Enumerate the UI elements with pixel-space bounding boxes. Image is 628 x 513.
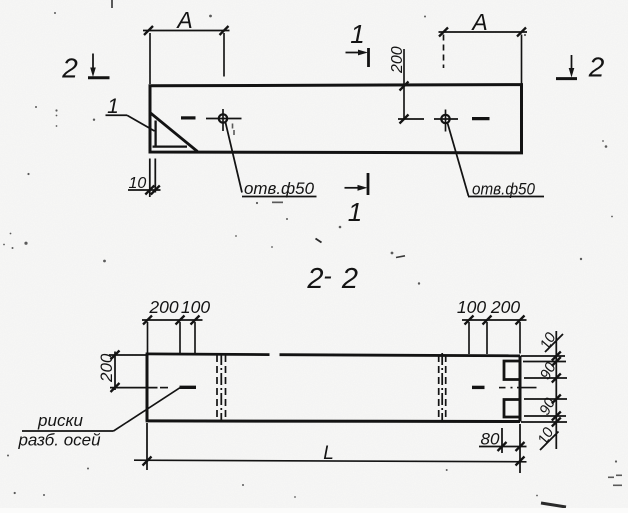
svg-text:200: 200 [148,297,178,317]
svg-text:2: 2 [588,52,605,83]
svg-text:-: - [323,262,331,290]
svg-text:10: 10 [129,175,147,192]
svg-text:2: 2 [306,263,323,295]
svg-text:разб. осей: разб. осей [17,431,101,450]
svg-text:А: А [175,7,192,33]
svg-text:200: 200 [490,297,520,317]
svg-text:80: 80 [481,430,500,449]
svg-text:200: 200 [97,353,116,383]
svg-text:2: 2 [61,53,78,84]
svg-text:100: 100 [181,297,210,317]
svg-text:1: 1 [348,197,362,227]
svg-text:риски: риски [37,411,83,430]
svg-text:А: А [470,9,487,35]
svg-text:2: 2 [341,263,358,295]
svg-text:200: 200 [389,46,406,74]
svg-text:1: 1 [350,19,364,49]
svg-text:L: L [323,443,334,464]
svg-text:100: 100 [457,297,486,317]
svg-text:отв.ф50: отв.ф50 [472,181,536,199]
svg-text:отв.ф50: отв.ф50 [244,180,315,198]
